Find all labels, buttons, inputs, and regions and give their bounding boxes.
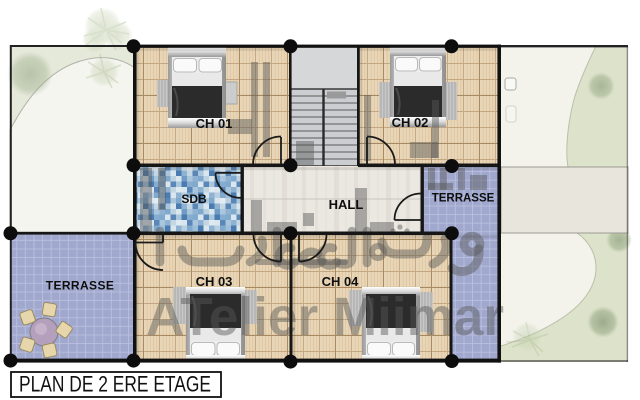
svg-text:HALL: HALL	[329, 197, 364, 212]
svg-text:TERRASSE: TERRASSE	[46, 279, 115, 293]
svg-text:PLAN DE 2 ERE ETAGE: PLAN DE 2 ERE ETAGE	[19, 372, 211, 397]
svg-text:SDB: SDB	[181, 192, 207, 206]
svg-text:CH 01: CH 01	[196, 116, 233, 131]
svg-text:CH 02: CH 02	[392, 115, 429, 130]
svg-text:CH 04: CH 04	[322, 274, 360, 289]
svg-text:CH 03: CH 03	[196, 274, 233, 289]
svg-text:TERRASSE: TERRASSE	[432, 193, 495, 205]
